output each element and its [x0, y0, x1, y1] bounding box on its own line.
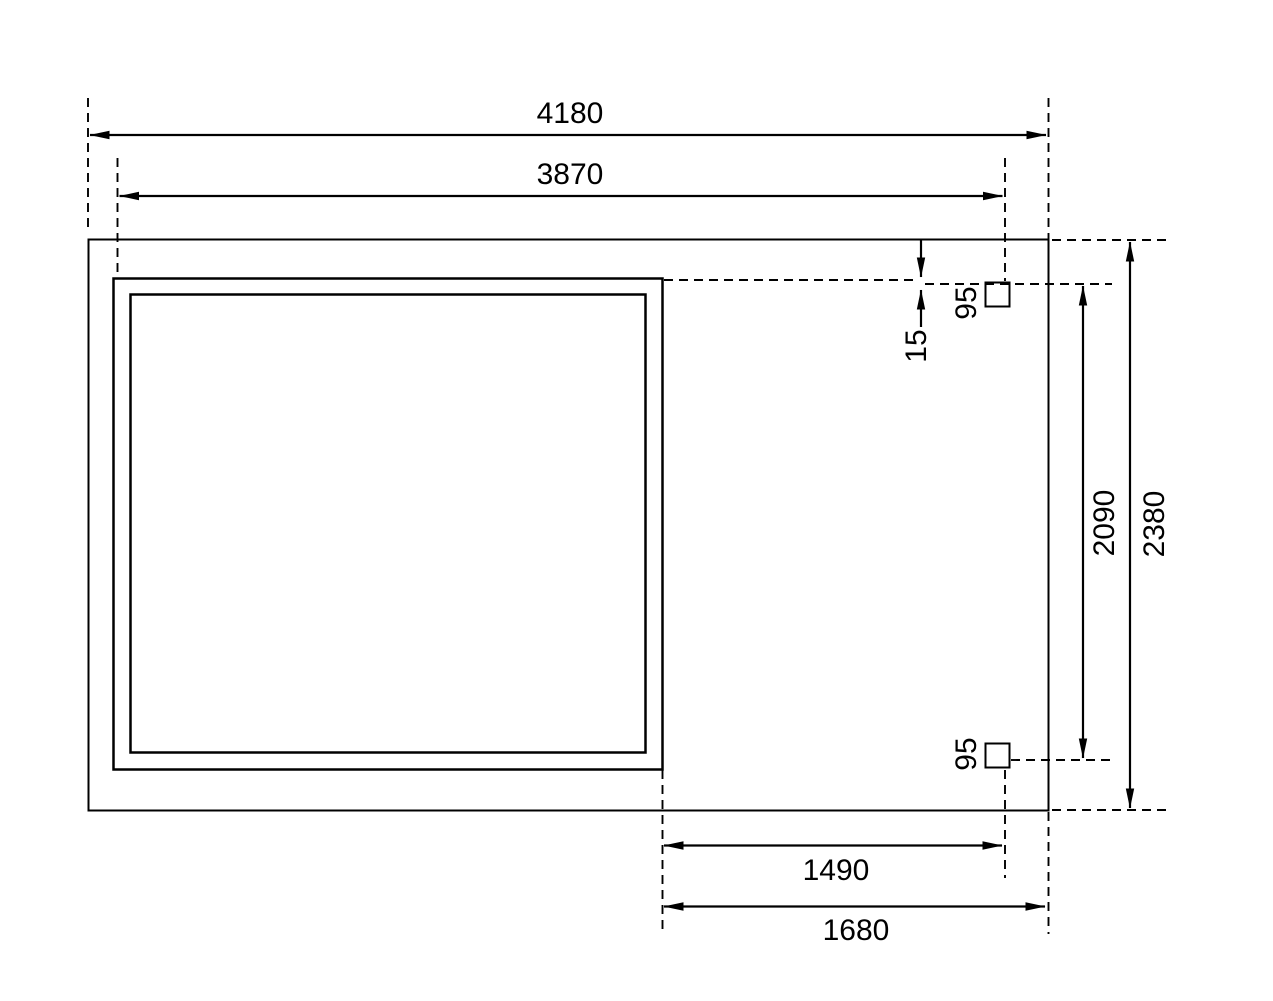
- drawing-canvas: 4180 3870 15 95 95 2090 2380 1490: [0, 0, 1273, 1001]
- dimension-total-depth: 2380: [1130, 242, 1171, 808]
- dimension-label-95-top: 95: [950, 286, 983, 319]
- floor-plan-drawing: 4180 3870 15 95 95 2090 2380 1490: [0, 0, 1273, 1001]
- dimension-label-4180: 4180: [537, 97, 604, 130]
- dimension-post-span: 2090: [1083, 286, 1121, 758]
- shed-wall-outer: [114, 279, 663, 770]
- dimension-label-95-bottom: 95: [950, 737, 983, 770]
- dimension-label-2380: 2380: [1138, 491, 1171, 558]
- dimension-house-width: 3870: [120, 158, 1003, 196]
- foundation-slab: [89, 240, 1049, 811]
- dimension-label-15: 15: [900, 329, 933, 362]
- dimension-annex-inner: 1490: [664, 846, 1002, 888]
- dimension-label-3870: 3870: [537, 158, 604, 191]
- dimension-gap-15: 15: [900, 239, 933, 363]
- shed-interior: [131, 295, 646, 753]
- dimension-label-2090: 2090: [1088, 490, 1121, 557]
- support-post-bottom: [986, 744, 1010, 768]
- dimension-label-1490: 1490: [803, 854, 870, 887]
- dimension-label-1680: 1680: [823, 914, 890, 947]
- support-post-top: [986, 283, 1010, 307]
- dimension-annex-outer: 1680: [664, 907, 1045, 948]
- dimension-total-width: 4180: [90, 97, 1046, 135]
